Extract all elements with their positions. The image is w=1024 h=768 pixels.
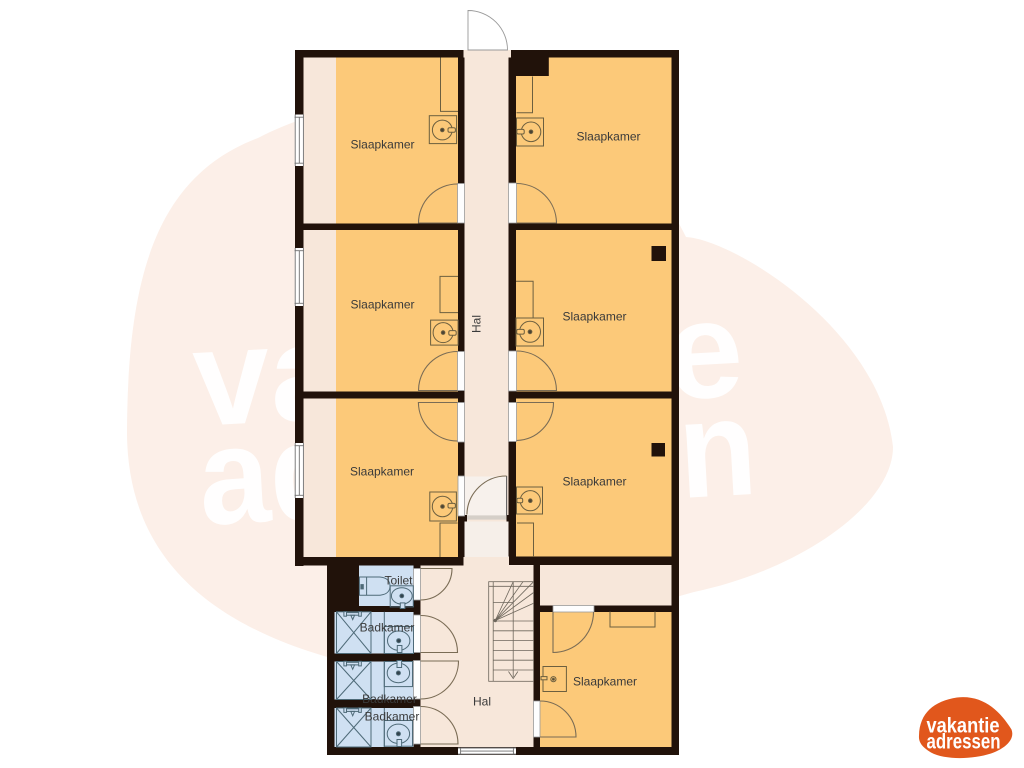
svg-text:Badkamer: Badkamer <box>365 710 420 724</box>
svg-text:Slaapkamer: Slaapkamer <box>562 310 626 324</box>
svg-text:Slaapkamer: Slaapkamer <box>562 475 626 489</box>
svg-text:adressen: adressen <box>927 731 1001 754</box>
svg-text:Badkamer: Badkamer <box>360 621 415 635</box>
svg-text:Slaapkamer: Slaapkamer <box>576 130 640 144</box>
svg-text:Slaapkamer: Slaapkamer <box>573 675 637 689</box>
svg-text:Badkamer: Badkamer <box>362 692 417 706</box>
svg-text:Slaapkamer: Slaapkamer <box>350 138 414 152</box>
svg-text:Slaapkamer: Slaapkamer <box>350 298 414 312</box>
svg-text:Slaapkamer: Slaapkamer <box>350 465 414 479</box>
svg-text:Hal: Hal <box>470 315 484 333</box>
svg-text:Hal: Hal <box>473 695 491 709</box>
svg-text:Toilet: Toilet <box>384 574 413 588</box>
